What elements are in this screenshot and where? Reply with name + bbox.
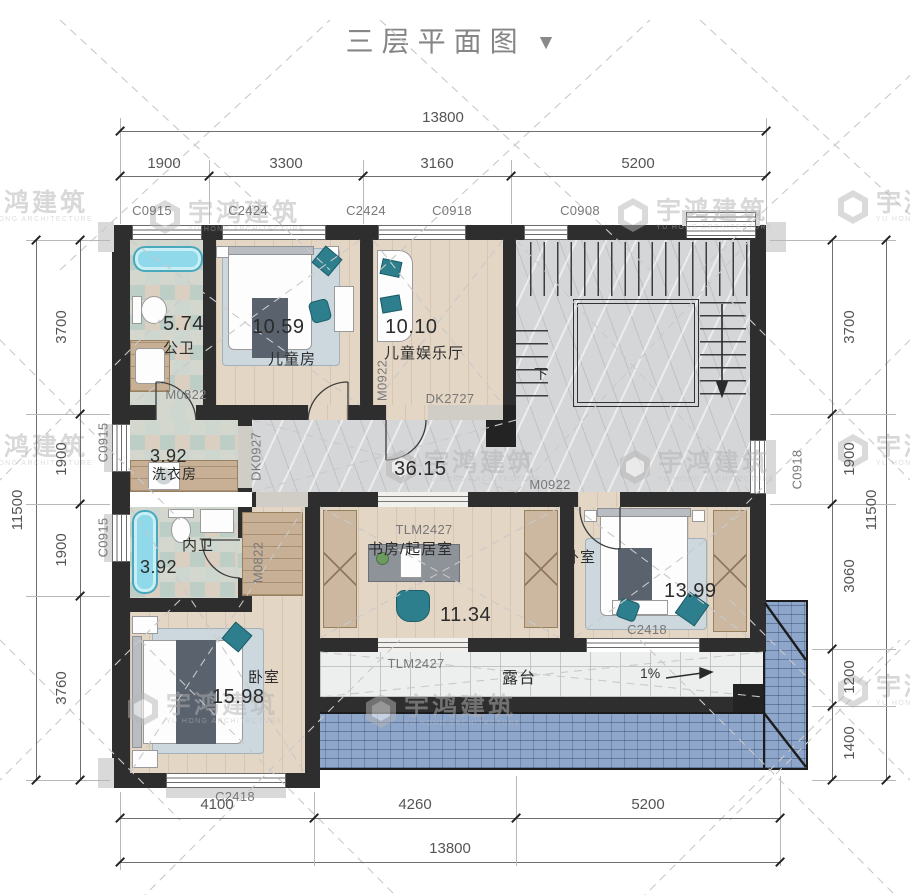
area-bedroom-right: 13.99 — [664, 580, 717, 603]
nightstand-right-l — [584, 510, 597, 522]
dim-right-seg-2: 1900 — [842, 427, 858, 491]
dim-right-total: 11500 — [864, 478, 880, 542]
label-window-c0918-top: C0918 — [422, 203, 482, 218]
label-opening-dk0927: DK0927 — [249, 427, 264, 487]
floor-corridor — [252, 420, 516, 492]
ext-line — [516, 776, 517, 866]
wardrobe-study-left — [323, 510, 357, 628]
roof-strip-bottom — [310, 712, 808, 770]
dim-top-seg-1: 1900 — [132, 156, 196, 172]
watermark: 宇鸿建筑YU HONG ARCHITECTURE — [838, 190, 910, 224]
wall-bath-kids — [203, 240, 216, 405]
headboard-kids — [226, 246, 314, 255]
wall-corridor-bottom — [252, 492, 766, 507]
wall-lounge-stairs — [503, 240, 516, 420]
wall-bedroomleft-right — [305, 507, 320, 773]
area-ensuite: 3.92 — [140, 557, 177, 578]
sink-public — [135, 348, 165, 384]
dim-top-seg-4: 5200 — [606, 156, 670, 172]
name-public-bath: 公卫 — [163, 337, 195, 358]
dim-left-seg-1: 3700 — [54, 295, 70, 359]
bathtub-public — [133, 246, 203, 272]
dim-top-total: 13800 — [411, 110, 475, 126]
dim-left-seg-3: 1900 — [54, 518, 70, 582]
headboard-bedroom-right — [597, 508, 691, 517]
dim-line-right-seg — [832, 240, 833, 780]
name-study: 书房/起居室 — [368, 538, 453, 559]
dim-right-seg-5: 1400 — [842, 711, 858, 775]
column-terrace-corner — [733, 684, 763, 712]
wall-ensuite-bottom — [112, 598, 252, 612]
nightstand-left-t — [132, 616, 158, 634]
area-study: 11.34 — [440, 604, 491, 627]
stair-flight-right — [700, 302, 746, 402]
dim-bottom-total: 13800 — [418, 841, 482, 857]
ext-line — [511, 160, 512, 224]
dim-right-seg-4: 1200 — [842, 645, 858, 709]
chair-study — [396, 590, 430, 622]
area-hall: 36.15 — [394, 458, 447, 481]
name-bedroom-right: 卧室 — [564, 546, 596, 567]
ext-line — [766, 118, 767, 224]
dim-left-seg-2: 1900 — [54, 427, 70, 491]
dim-right-seg-3: 3060 — [842, 544, 858, 608]
dim-top-seg-2: 3300 — [254, 156, 318, 172]
label-window-c2424-lounge: C2424 — [336, 203, 396, 218]
headboard-bedroom-left — [132, 636, 142, 748]
dim-left-total: 11500 — [10, 478, 26, 542]
gap-bedroomright-door — [578, 492, 620, 507]
stair-flight-top — [530, 242, 748, 296]
window-c2424-kids — [222, 225, 326, 240]
label-door-m0822-ensuite: M0822 — [251, 533, 266, 593]
sofa-pillow-2 — [380, 294, 402, 313]
name-kids-lounge: 儿童娱乐厅 — [384, 342, 464, 363]
label-opening-dk2727: DK2727 — [415, 391, 485, 406]
ext-line — [780, 776, 781, 866]
area-public-bath: 5.74 — [163, 313, 204, 336]
collapse-triangle-icon[interactable]: ▼ — [536, 31, 565, 55]
label-window-c0915-top: C0915 — [122, 203, 182, 218]
wardrobe-study-right — [524, 510, 558, 628]
wall-left — [112, 225, 130, 788]
corner-pad-tr — [766, 222, 786, 252]
label-slope: 1% — [640, 665, 660, 681]
gap-kids-door — [308, 405, 348, 420]
label-window-c0918-right: C0918 — [790, 440, 805, 500]
dim-bottom-seg-2: 4260 — [383, 797, 447, 813]
dim-line-left-total — [36, 240, 37, 780]
yuhong-logo-icon — [838, 190, 868, 224]
dim-line-bottom-seg — [120, 818, 780, 819]
ext-line — [120, 118, 121, 224]
ext-line — [26, 240, 110, 241]
window-c2418-right — [586, 638, 700, 652]
ext-line — [209, 160, 210, 224]
sill-right — [766, 440, 776, 494]
label-door-m0822-bath: M0822 — [156, 387, 216, 402]
corner-pad-bl — [98, 758, 114, 788]
gap-lounge-door — [386, 405, 428, 420]
dresser-kids — [334, 286, 354, 332]
corner-pad-tl — [98, 222, 114, 252]
sink-ensuite — [200, 509, 234, 533]
page-title-text: 三层平面图 — [346, 26, 526, 57]
label-stair-down: 下 — [534, 364, 548, 384]
window-c0915-laundry — [112, 424, 130, 472]
dim-left-seg-4: 3760 — [54, 656, 70, 720]
name-laundry: 洗衣房 — [152, 464, 197, 484]
label-door-tlm2427-terrace: TLM2427 — [378, 656, 454, 671]
dim-top-seg-3: 3160 — [405, 156, 469, 172]
window-c0915-ensuite — [112, 514, 130, 562]
wall-kids-lounge — [360, 240, 373, 405]
label-window-c0908: C0908 — [550, 203, 610, 218]
page-title: 三层平面图▼ — [0, 20, 910, 60]
label-door-m0922-bedroom: M0922 — [518, 477, 582, 492]
gap-dk2727-opening — [428, 405, 503, 420]
dim-bottom-seg-3: 5200 — [616, 797, 680, 813]
closet-bedroom-right — [713, 510, 747, 632]
ext-line — [314, 792, 315, 866]
name-terrace: 露台 — [502, 664, 536, 688]
watermark: 宇鸿建筑YU HONG ARCHITECTURE — [0, 190, 93, 224]
window-c0918-top — [524, 225, 568, 240]
ext-line — [26, 780, 110, 781]
bathtub-ensuite — [132, 510, 158, 594]
label-window-c0915-ensuite: C0915 — [96, 508, 111, 568]
dim-line-bottom-total — [120, 862, 780, 863]
nightstand-right-r — [692, 510, 705, 522]
area-bedroom-left: 15.98 — [212, 686, 265, 709]
nightstand-kids-l — [216, 246, 229, 258]
floor-plan-sheet: 三层平面图▼ — [0, 0, 910, 895]
nightstand-left-b — [132, 750, 158, 768]
dim-right-seg-1: 3700 — [842, 295, 858, 359]
stair-void — [577, 303, 695, 403]
ext-line — [26, 596, 110, 597]
dim-line-top-total — [120, 131, 766, 132]
name-bedroom-left: 卧室 — [248, 666, 280, 687]
dim-line-top-seg — [120, 176, 766, 177]
door-tlm2427-study — [378, 492, 468, 507]
label-window-c2424-kids: C2424 — [218, 203, 278, 218]
area-kids-lounge: 10.10 — [385, 316, 438, 339]
terrace-parapet — [310, 697, 763, 712]
door-tlm2427-terrace — [378, 638, 468, 652]
name-ensuite: 内卫 — [182, 534, 214, 555]
window-c0915-top — [132, 225, 202, 240]
name-kids-bedroom: 儿童房 — [268, 348, 316, 369]
ext-line — [26, 504, 110, 505]
dim-line-right-total — [886, 240, 887, 780]
window-c0918-right — [750, 440, 766, 494]
window-c0908-bay — [686, 212, 756, 238]
label-door-tlm2427-study: TLM2427 — [386, 522, 462, 537]
wall-study-right — [560, 507, 574, 638]
gap-bedroomleft-entry — [256, 492, 308, 507]
window-c2424-lounge — [378, 225, 466, 240]
dim-line-left-seg — [80, 240, 81, 780]
bed-runner-left — [176, 640, 216, 744]
label-window-c2418-left: C2418 — [200, 789, 270, 804]
area-kids-bedroom: 10.59 — [252, 316, 305, 339]
label-window-c0915-laundry: C0915 — [96, 413, 111, 473]
gap-bath-door — [156, 405, 196, 420]
label-window-c2418-right: C2418 — [612, 622, 682, 637]
roof-wing-right — [763, 600, 808, 770]
window-c2418-left — [166, 773, 286, 788]
